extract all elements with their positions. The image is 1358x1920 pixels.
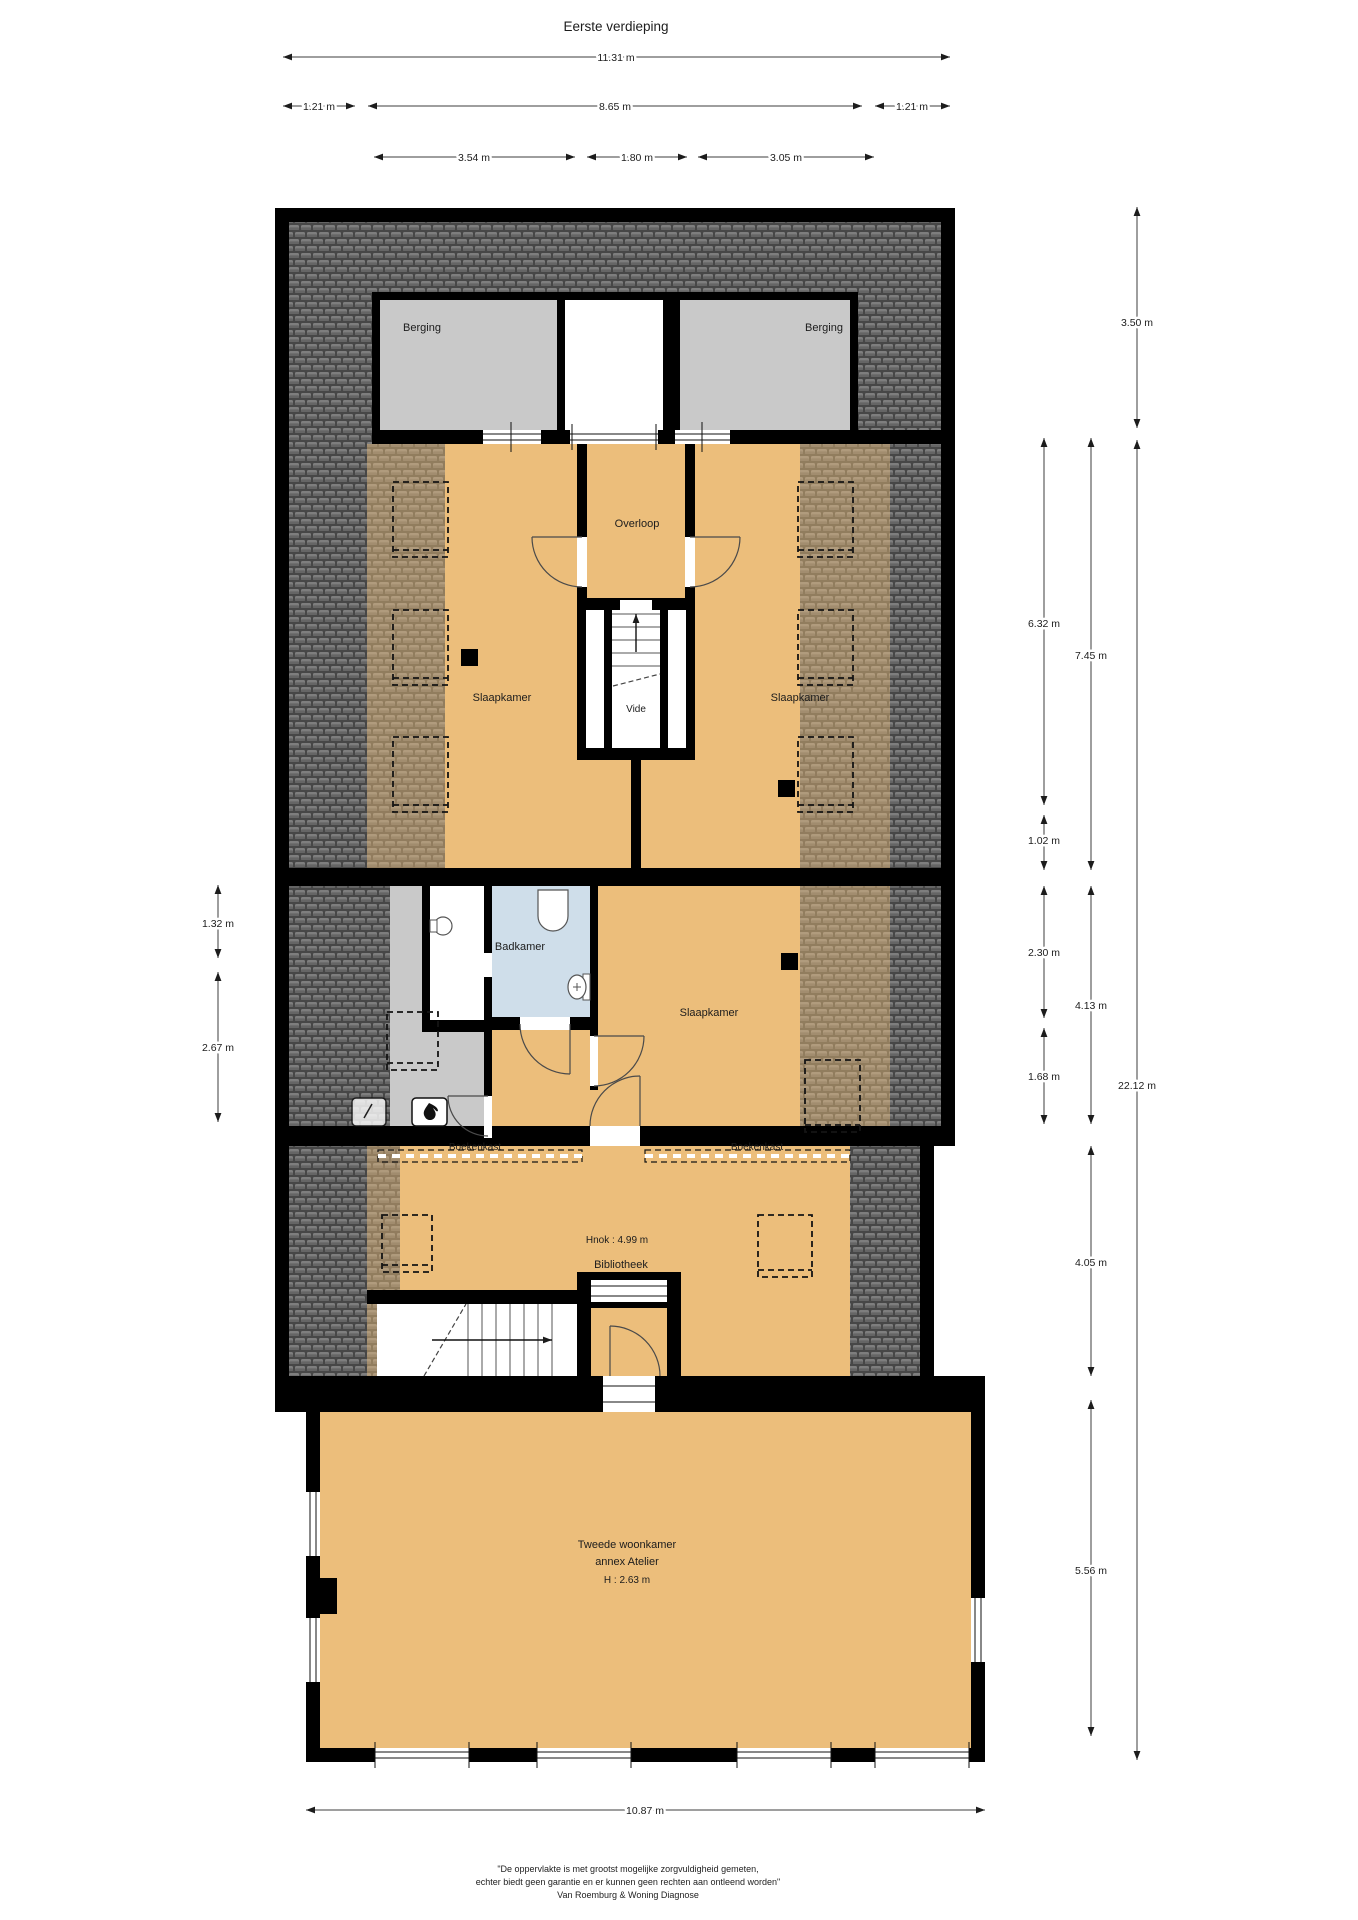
dim-right-102: 1.02 m [1028,835,1060,847]
dim-right-632: 6.32 m [1028,618,1060,630]
dim-right-168: 1.68 m [1028,1071,1060,1083]
label-boekenkast-left: Boekenkast [449,1142,501,1153]
stairs-down [377,1304,577,1376]
floorplan-page: Berging Berging Overloop Slaapkamer Slaa… [0,0,1358,1920]
footer: "De oppervlakte is met grootst mogelijke… [476,1864,780,1900]
vide-slit-left [586,610,604,748]
label-woonkamer-2: annex Atelier [595,1556,659,1568]
dim-bottom-1087: 10.87 m [626,1805,664,1817]
dim-right-230: 2.30 m [1028,947,1060,959]
label-berging-right: Berging [805,322,843,334]
stairwell-vide [577,598,695,760]
label-slaapkamer-mid: Slaapkamer [680,1007,739,1019]
room-void-top [565,300,663,430]
room-berging-left [380,300,557,430]
dim-width-right: 1.21 m [896,101,928,113]
label-overloop: Overloop [615,518,660,530]
dim-left-132: 1.32 m [202,918,234,930]
fireplace-left-icon [352,1098,386,1126]
fireplace-icon [412,1098,447,1126]
dim-width-a: 3.54 m [458,152,490,164]
vent-square-2 [778,780,795,797]
floorplan-drawing: Berging Berging Overloop Slaapkamer Slaa… [0,0,1358,1920]
dimensions-bottom: 10.87 m [306,1805,985,1817]
bathtub-icon [538,890,568,931]
dim-width-left: 1.21 m [303,101,335,113]
dim-width-mid: 8.65 m [599,101,631,113]
dim-width-b: 1.80 m [621,152,653,164]
dim-right-556: 5.56 m [1075,1565,1107,1577]
label-slaapkamer-left: Slaapkamer [473,692,532,704]
label-hnok: Hnok : 4.99 m [586,1235,648,1246]
vent-square-1 [461,649,478,666]
label-vide: Vide [626,704,646,715]
page-title: Eerste verdieping [563,19,668,34]
dim-right-350: 3.50 m [1121,317,1153,329]
dim-width-c: 3.05 m [770,152,802,164]
dim-width-total: 11.31 m [597,52,634,64]
dimensions-right: 3.50 m 22.12 m 6.32 m 1.02 m 2.30 m 1.68… [1028,207,1156,1760]
label-woonkamer-h: H : 2.63 m [604,1575,650,1586]
dim-right-405: 4.05 m [1075,1257,1107,1269]
dim-right-745: 7.45 m [1075,650,1107,662]
label-badkamer: Badkamer [495,941,545,953]
vide-slit-right [668,610,686,748]
room-toilet [430,886,484,1020]
footer-line-1: "De oppervlakte is met grootst mogelijke… [497,1864,758,1874]
window-stairs-hall [591,1280,667,1302]
dim-left-267: 2.67 m [202,1042,234,1054]
dimensions-top: 11.31 m 1.21 m 8.65 m 1.21 m 3.54 m 1.80… [283,52,950,164]
sink-icon [430,917,452,935]
label-berging-left: Berging [403,322,441,334]
dim-right-2212: 22.12 m [1118,1080,1156,1092]
label-slaapkamer-right: Slaapkamer [771,692,830,704]
footer-line-2: echter biedt geen garantie en er kunnen … [476,1877,780,1887]
label-boekenkast-right: Boekenkast [731,1142,783,1153]
vent-square-3 [781,953,798,970]
label-woonkamer-1: Tweede woonkamer [578,1539,677,1551]
dim-right-413: 4.13 m [1075,1000,1107,1012]
label-bibliotheek: Bibliotheek [594,1259,648,1271]
dimensions-left: 1.32 m 2.67 m [202,885,234,1122]
room-berging-right [680,300,850,430]
toilet-icon [568,974,590,1000]
footer-line-3: Van Roemburg & Woning Diagnose [557,1890,699,1900]
